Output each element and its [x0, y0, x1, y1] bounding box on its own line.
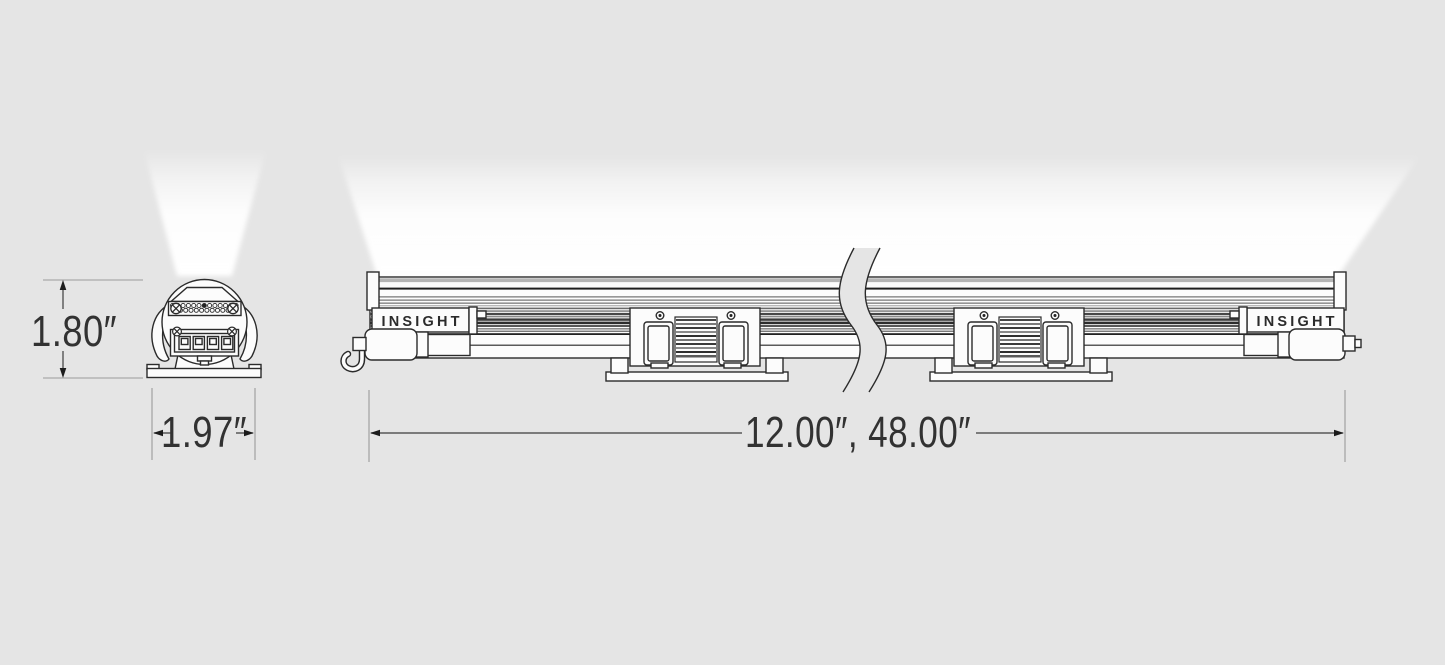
- dimension-width: 1.97″: [152, 388, 255, 460]
- length-dimension-label: 12.00″, 48.00″: [745, 408, 971, 457]
- light-beam-side-view: [338, 155, 1420, 279]
- mounting-bracket-2: [930, 308, 1112, 381]
- technical-diagram: INSIGHT INSIGHT: [0, 0, 1445, 665]
- dimension-length: 12.00″, 48.00″: [369, 390, 1345, 462]
- arrow-up-icon: [60, 280, 67, 290]
- width-dimension-label: 1.97″: [161, 408, 247, 457]
- endcap-left: [367, 272, 379, 310]
- screw-icon: [228, 327, 237, 336]
- arrow-down-icon: [60, 368, 67, 378]
- dimension-height: 1.80″: [31, 280, 143, 378]
- power-connector-left: [344, 329, 471, 369]
- screw-icon: [173, 327, 182, 336]
- screw-icon: [171, 303, 181, 313]
- diagram-canvas: INSIGHT INSIGHT: [0, 0, 1445, 665]
- endcap-right: [1334, 272, 1346, 310]
- arrow-left-icon: [370, 430, 380, 437]
- fixture-end-view: [147, 280, 261, 378]
- light-beam-end-view: [144, 150, 266, 276]
- screw-icon: [228, 303, 238, 313]
- height-dimension-label: 1.80″: [31, 307, 117, 356]
- arrow-right-icon: [1334, 430, 1344, 437]
